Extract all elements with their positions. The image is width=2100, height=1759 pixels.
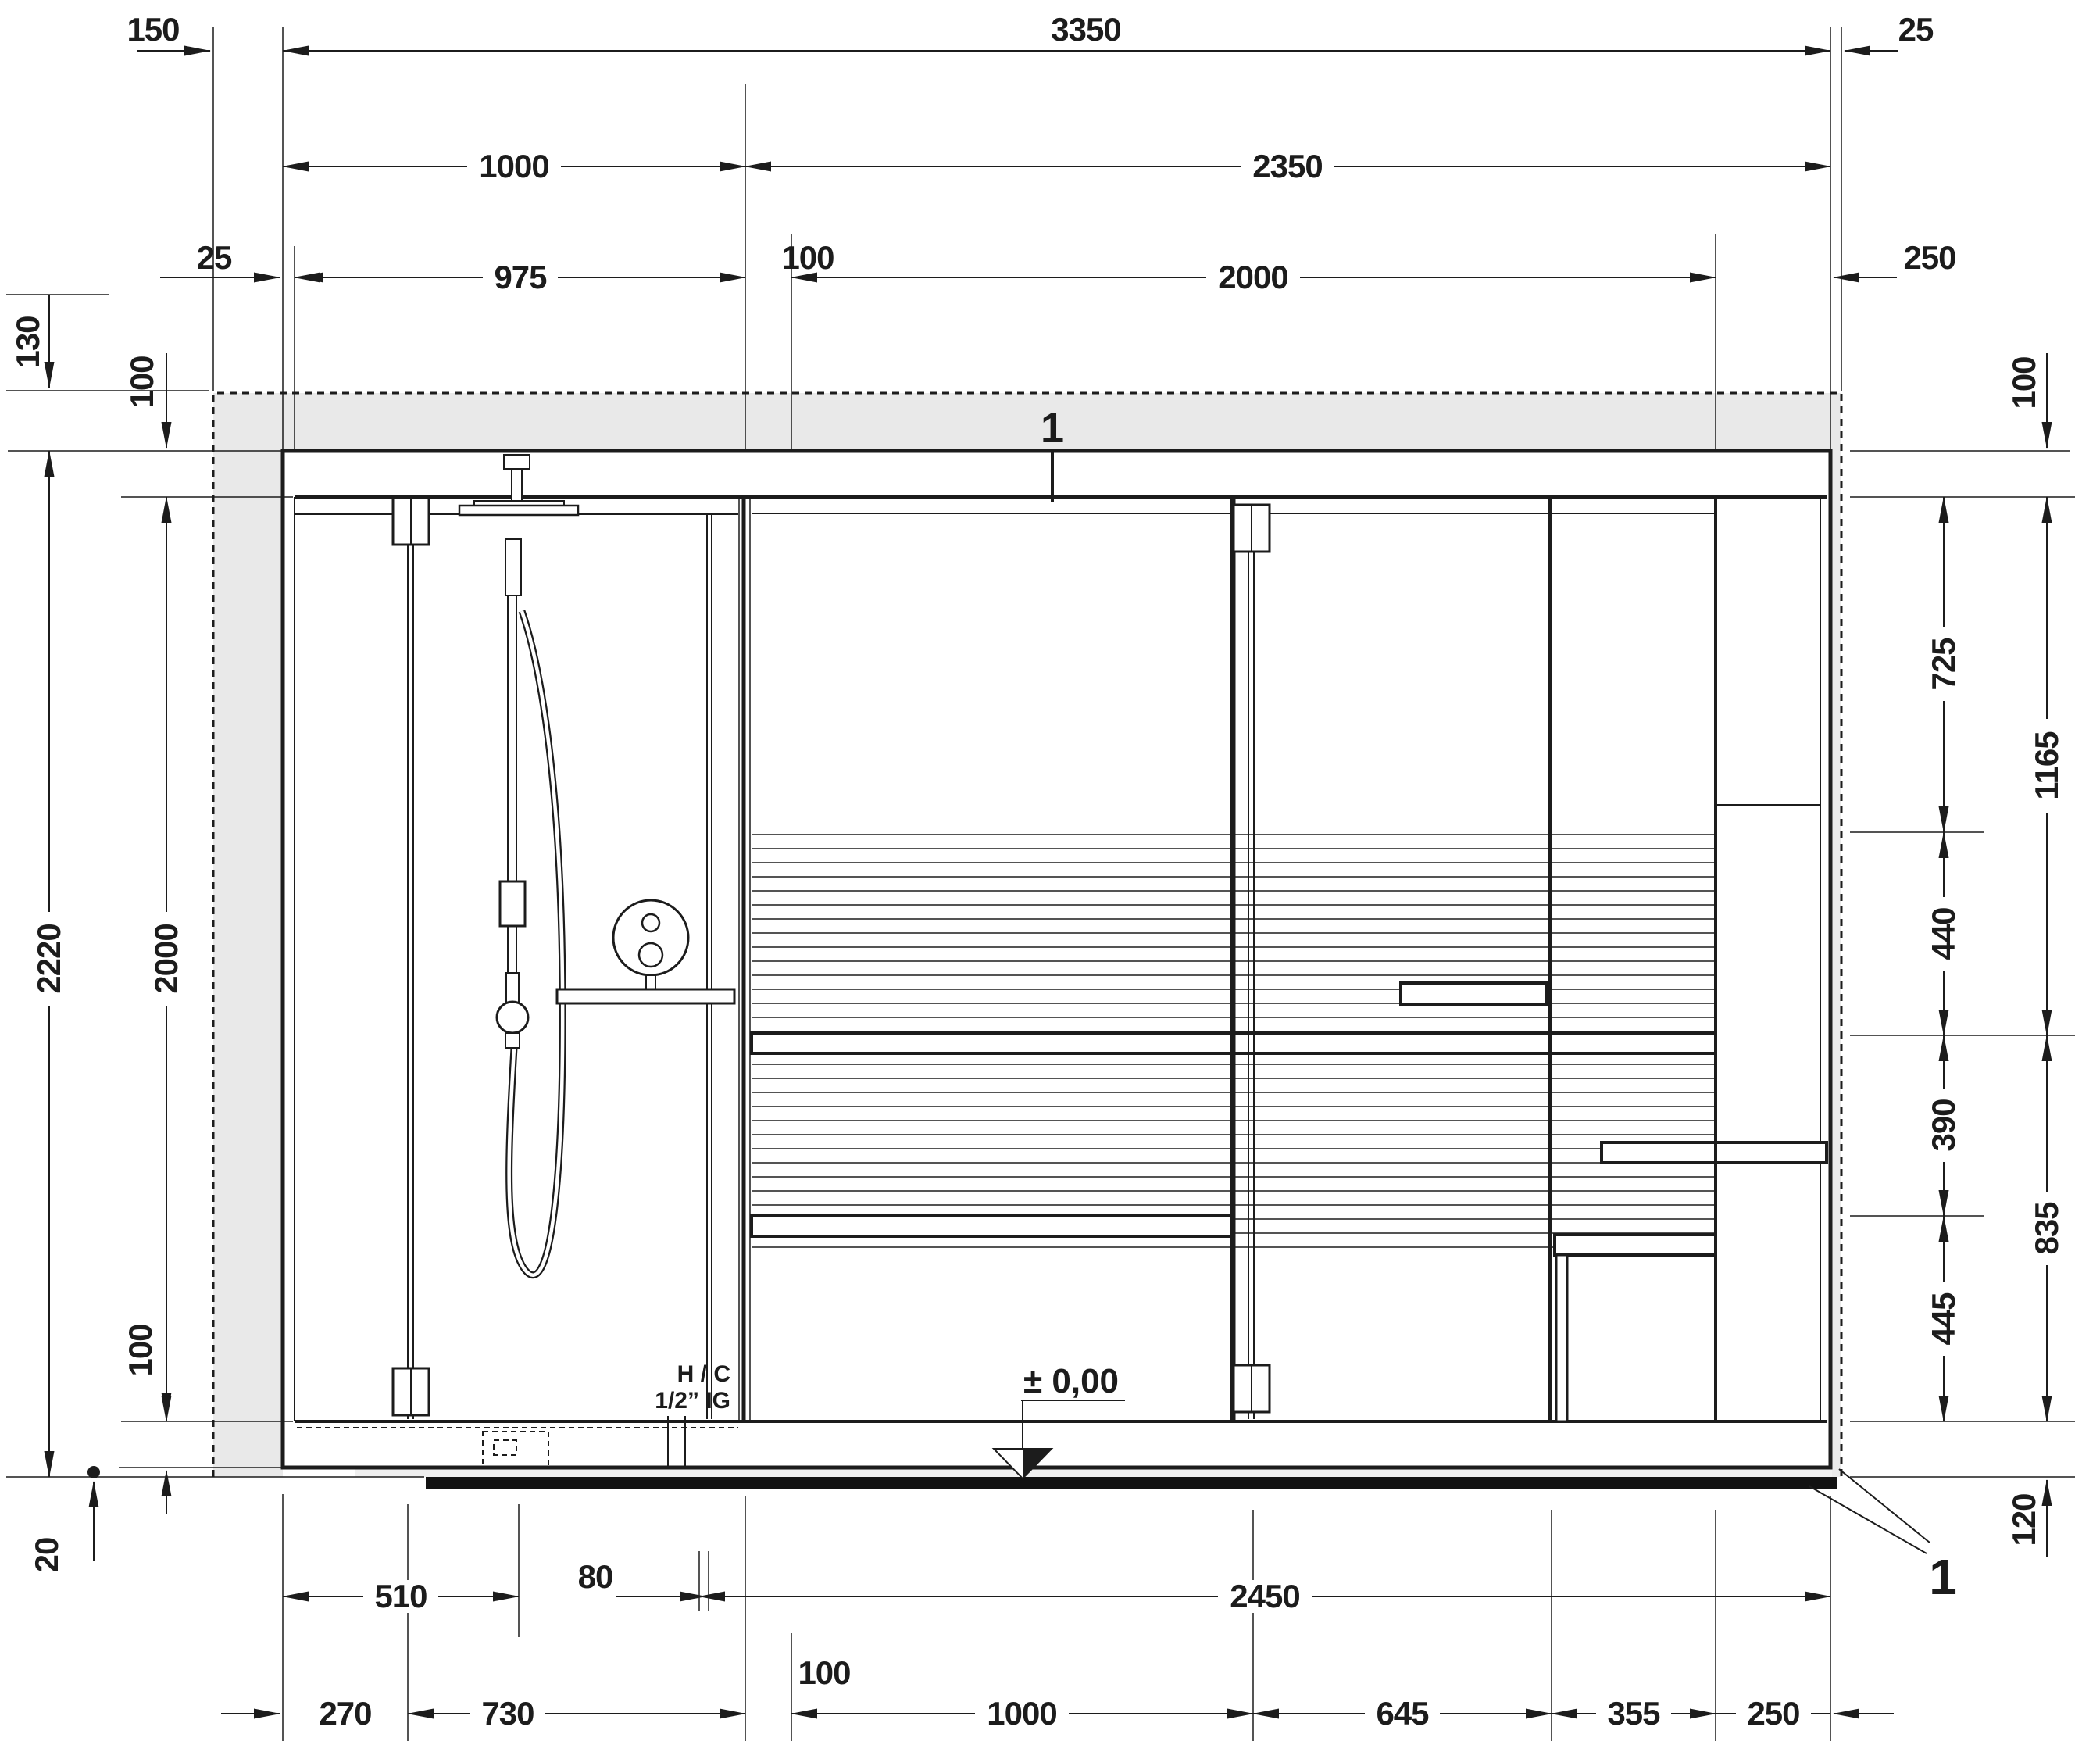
dim-25-top-left: 25 — [160, 239, 345, 277]
svg-text:2000: 2000 — [1218, 259, 1287, 295]
svg-text:390: 390 — [1925, 1099, 1962, 1151]
supply-label-ig: 1/2” IG — [655, 1388, 730, 1414]
section-marker-top-label: 1 — [1041, 405, 1064, 452]
dim-100-left-top: 100 — [123, 353, 166, 448]
dim-20: 20 — [28, 1466, 100, 1572]
supply-label-hc: H / C — [677, 1361, 730, 1387]
sauna-shower-elevation-drawing: H / C 1/2” IG ± 0,00 1 1 150 3350 — [0, 0, 2100, 1759]
svg-text:100: 100 — [123, 356, 160, 408]
svg-text:725: 725 — [1925, 638, 1962, 691]
svg-text:80: 80 — [578, 1558, 613, 1595]
dim-510: 510 — [283, 1578, 519, 1614]
dim-730: 730 — [408, 1695, 745, 1732]
dim-120: 120 — [2005, 1480, 2047, 1557]
shower-shelf — [557, 989, 734, 1003]
rail-slider — [500, 881, 525, 926]
bench-leg — [1556, 1255, 1567, 1421]
floor-slab — [355, 1468, 1837, 1489]
dim-355: 355 — [1552, 1695, 1716, 1732]
dim-725: 725 — [1925, 497, 1962, 832]
dim-250-bottom: 250 — [1716, 1695, 1894, 1732]
dim-2000-left: 2000 — [148, 497, 184, 1421]
sauna-door-hinge-top — [1234, 505, 1270, 552]
technical-drawing-page: H / C 1/2” IG ± 0,00 1 1 150 3350 — [0, 0, 2100, 1759]
svg-text:645: 645 — [1376, 1695, 1429, 1732]
dim-440: 440 — [1925, 832, 1962, 1035]
svg-text:510: 510 — [374, 1578, 427, 1614]
svg-text:270: 270 — [319, 1695, 371, 1732]
dimensions-right: 100 725 440 390 445 1165 — [1925, 353, 2065, 1557]
svg-text:130: 130 — [9, 316, 46, 368]
dim-1000-top: 1000 — [283, 148, 745, 184]
dim-2220: 2220 — [30, 451, 67, 1477]
sauna-door-hinge-bottom — [1234, 1365, 1270, 1412]
dim-25-top-right: 25 — [1845, 11, 1934, 51]
svg-text:2000: 2000 — [148, 924, 184, 993]
svg-text:250: 250 — [1903, 239, 1955, 276]
bench-headrest — [1401, 983, 1547, 1005]
svg-text:445: 445 — [1925, 1292, 1962, 1346]
svg-text:3350: 3350 — [1051, 11, 1120, 48]
svg-text:1000: 1000 — [479, 148, 548, 184]
dim-390: 390 — [1925, 1035, 1962, 1216]
dim-1165: 1165 — [2028, 497, 2065, 1035]
dim-100-right: 100 — [2005, 353, 2047, 448]
dim-80: 80 — [578, 1558, 705, 1596]
dimensions-bottom: 510 80 2450 270 730 100 1000 — [221, 1558, 1894, 1732]
dim-3350: 3350 — [283, 11, 1830, 51]
svg-text:25: 25 — [1898, 11, 1934, 48]
dim-130: 130 — [9, 295, 49, 388]
svg-text:730: 730 — [481, 1695, 534, 1732]
dim-2000-top: 2000 — [791, 259, 1716, 295]
dim-1000-bottom: 1000 — [791, 1695, 1253, 1732]
svg-text:120: 120 — [2005, 1493, 2042, 1546]
svg-text:2350: 2350 — [1252, 148, 1322, 184]
section-marker-bottom: 1 — [1809, 1469, 1957, 1605]
svg-text:1165: 1165 — [2028, 731, 2065, 800]
dim-645: 645 — [1253, 1695, 1552, 1732]
dim-2450: 2450 — [699, 1578, 1830, 1614]
dim-100-bottom: 100 — [798, 1654, 850, 1691]
dim-100-left-bottom: 100 — [122, 1324, 166, 1514]
datum-dot-icon — [87, 1466, 100, 1478]
svg-text:2220: 2220 — [30, 924, 67, 993]
dim-270: 270 — [221, 1695, 372, 1732]
svg-text:20: 20 — [28, 1538, 65, 1573]
svg-text:150: 150 — [127, 11, 179, 48]
dimensions-top: 150 3350 25 1000 2350 25 975 — [127, 11, 1955, 295]
svg-text:355: 355 — [1607, 1695, 1660, 1732]
lower-bench-left — [752, 1215, 1233, 1236]
dim-445: 445 — [1925, 1216, 1962, 1421]
svg-text:100: 100 — [798, 1654, 850, 1691]
level-marker-label: ± 0,00 — [1023, 1362, 1119, 1400]
dim-835: 835 — [2028, 1035, 2065, 1421]
shower-door-hinge-top — [393, 498, 429, 545]
section-marker-bottom-label: 1 — [1929, 1549, 1957, 1605]
svg-text:250: 250 — [1747, 1695, 1799, 1732]
dim-100-top: 100 — [781, 239, 834, 276]
svg-text:975: 975 — [494, 259, 547, 295]
dim-975: 975 — [295, 259, 745, 295]
dim-2350-top: 2350 — [745, 148, 1830, 184]
svg-text:100: 100 — [122, 1324, 159, 1376]
svg-text:835: 835 — [2028, 1202, 2065, 1255]
lower-bench-right — [1555, 1235, 1716, 1255]
dimensions-left: 130 100 2220 2000 100 20 — [9, 295, 184, 1572]
dim-250-top: 250 — [1834, 239, 1956, 277]
svg-text:2450: 2450 — [1230, 1578, 1299, 1614]
svg-text:100: 100 — [2005, 356, 2042, 409]
svg-text:25: 25 — [197, 239, 232, 276]
dim-150: 150 — [127, 11, 210, 51]
svg-text:100: 100 — [781, 239, 834, 276]
svg-text:1000: 1000 — [987, 1695, 1056, 1732]
shower-door-hinge-bottom — [393, 1368, 429, 1415]
svg-text:440: 440 — [1925, 907, 1962, 960]
